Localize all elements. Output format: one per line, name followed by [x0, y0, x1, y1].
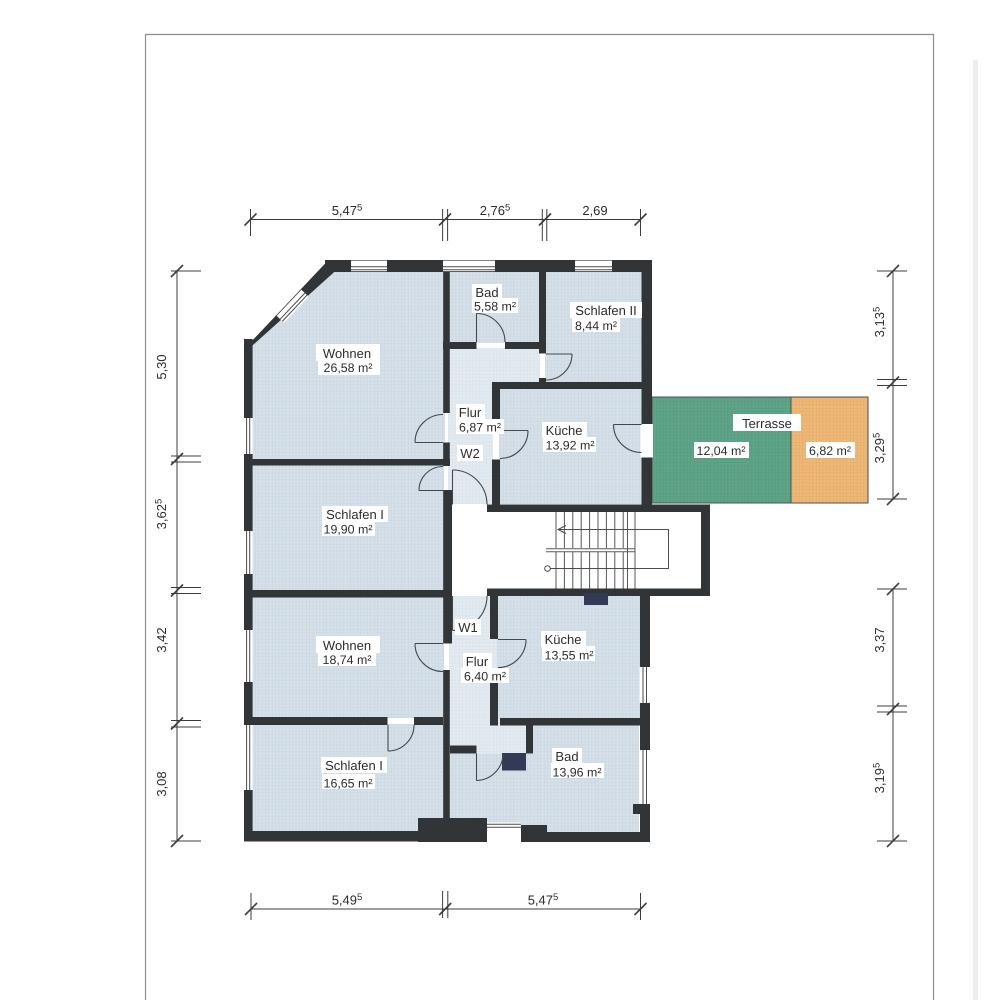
svg-text:5,30: 5,30	[154, 354, 169, 379]
svg-text:Schlafen I: Schlafen I	[325, 758, 383, 773]
svg-text:Bad: Bad	[475, 285, 498, 300]
svg-text:Flur: Flur	[459, 405, 482, 420]
svg-text:3,195: 3,195	[872, 763, 888, 794]
svg-text:W1: W1	[458, 620, 478, 635]
svg-text:Bad: Bad	[555, 749, 578, 764]
svg-text:3,135: 3,135	[872, 307, 888, 338]
svg-text:13,55 m²: 13,55 m²	[545, 649, 594, 663]
svg-text:Wohnen: Wohnen	[323, 638, 371, 653]
svg-text:6,40 m²: 6,40 m²	[464, 670, 506, 684]
svg-text:Wohnen: Wohnen	[323, 346, 371, 361]
svg-text:W2: W2	[460, 446, 480, 461]
svg-text:3,42: 3,42	[154, 627, 169, 652]
svg-text:2,765: 2,765	[480, 203, 511, 219]
svg-text:19,90 m²: 19,90 m²	[324, 523, 373, 537]
svg-text:13,96 m²: 13,96 m²	[553, 766, 602, 780]
svg-text:3,295: 3,295	[872, 433, 888, 464]
svg-text:18,74 m²: 18,74 m²	[323, 653, 372, 667]
svg-text:5,58 m²: 5,58 m²	[474, 300, 516, 314]
svg-text:Terrasse: Terrasse	[742, 416, 792, 431]
svg-text:Schlafen I: Schlafen I	[326, 507, 384, 522]
svg-text:6,87 m²: 6,87 m²	[459, 421, 501, 435]
svg-text:5,495: 5,495	[332, 892, 363, 908]
svg-text:8,44 m²: 8,44 m²	[575, 319, 617, 333]
svg-text:5,475: 5,475	[528, 892, 559, 908]
svg-text:3,625: 3,625	[154, 499, 170, 530]
svg-text:16,65 m²: 16,65 m²	[324, 777, 373, 791]
svg-text:Flur: Flur	[466, 654, 489, 669]
svg-text:Küche: Küche	[545, 632, 582, 647]
svg-text:3,37: 3,37	[872, 627, 887, 652]
svg-text:Küche: Küche	[546, 423, 583, 438]
svg-text:5,475: 5,475	[332, 203, 363, 219]
svg-text:12,04 m²: 12,04 m²	[697, 444, 746, 458]
svg-text:6,82 m²: 6,82 m²	[809, 444, 851, 458]
svg-text:26,58 m²: 26,58 m²	[324, 361, 373, 375]
svg-text:13,92 m²: 13,92 m²	[546, 439, 595, 453]
svg-text:Schlafen II: Schlafen II	[575, 303, 636, 318]
svg-text:3,08: 3,08	[154, 771, 169, 796]
svg-text:2,69: 2,69	[582, 203, 607, 218]
